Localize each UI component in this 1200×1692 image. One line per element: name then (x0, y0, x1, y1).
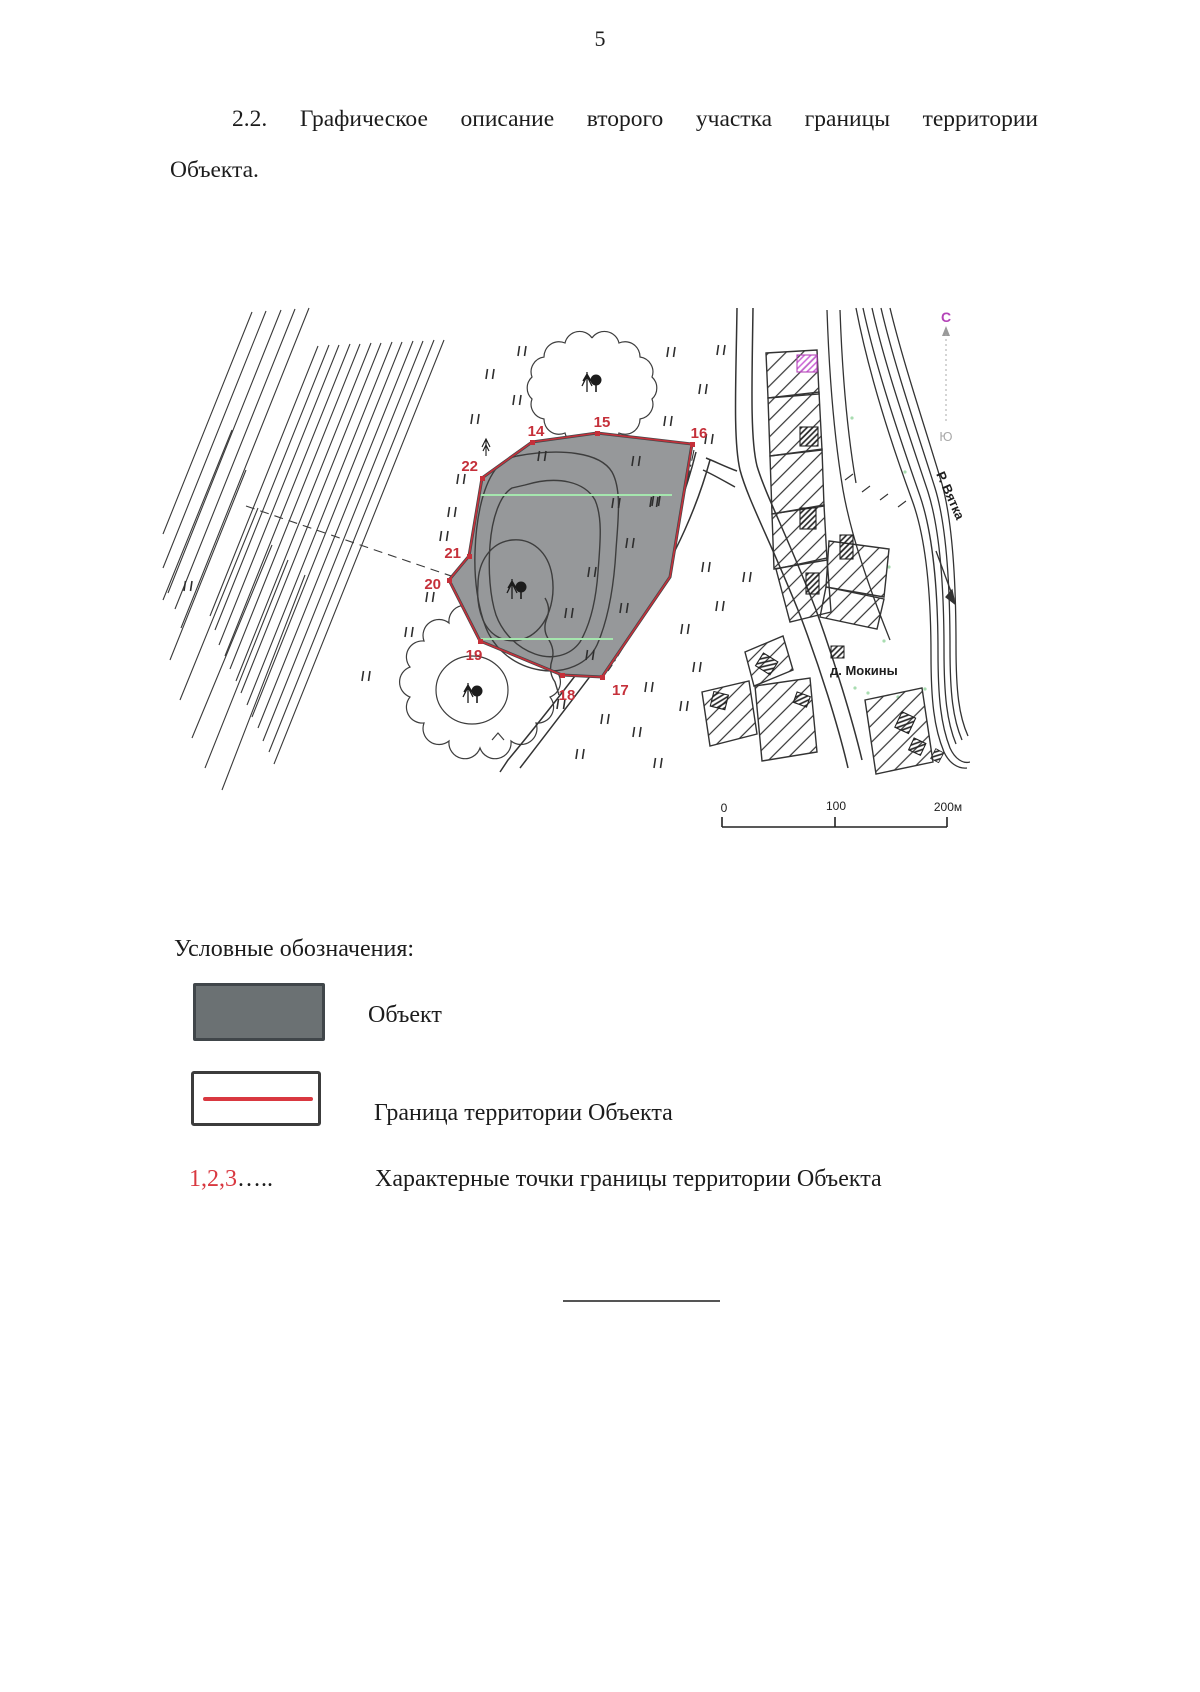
point-label-16: 16 (691, 425, 708, 442)
sapling-icon (482, 439, 490, 456)
legend-object-swatch (193, 983, 325, 1041)
point-label-17: 17 (612, 682, 629, 699)
scale-0: 0 (721, 801, 728, 815)
legend-border-line-icon (203, 1097, 313, 1101)
compass-south-label: Ю (939, 429, 952, 444)
compass-north-label: С (941, 309, 951, 325)
legend-object-label: Объект (368, 1002, 442, 1029)
legend-title: Условные обозначения: (174, 936, 414, 963)
scale-bar-labels: 0 100 200м (721, 799, 962, 815)
section-heading-line2: Объекта. (170, 157, 259, 184)
scale-bar (722, 817, 947, 827)
legend-border-label: Граница территории Объекта (374, 1100, 673, 1127)
legend-points-symbol: 1,2,3….. (189, 1166, 273, 1193)
building-pink (797, 355, 817, 372)
legend-points-dots: ….. (237, 1166, 273, 1192)
page-number: 5 (0, 26, 1200, 52)
river-flow-arrow (936, 551, 955, 604)
object-polygon (449, 433, 692, 695)
forest-cloud-top (527, 331, 657, 444)
point-label-20: 20 (424, 576, 441, 593)
river-label: Р. Вятка (933, 469, 968, 522)
scale-200: 200м (934, 800, 962, 814)
parcels (702, 350, 933, 774)
point-label-19: 19 (466, 647, 483, 664)
bottom-divider-line (563, 1300, 720, 1302)
legend-border-swatch (191, 1071, 321, 1126)
point-label-18: 18 (559, 687, 576, 704)
compass: С Ю (939, 309, 952, 444)
section-heading-line1: 2.2. Графическое описание второго участк… (232, 106, 1038, 133)
point-label-15: 15 (594, 414, 611, 431)
scale-100: 100 (826, 799, 846, 813)
legend-points-label: Характерные точки границы территории Объ… (375, 1166, 882, 1193)
village-label: д. Мокины (830, 663, 898, 678)
legend-points-numbers: 1,2,3 (189, 1166, 237, 1192)
map-figure: 14 15 16 17 18 19 20 21 22 д. Мокины С Ю… (160, 280, 970, 840)
point-label-22: 22 (461, 458, 478, 475)
point-label-14: 14 (528, 423, 545, 440)
village-label-group: д. Мокины (830, 646, 898, 678)
point-label-21: 21 (444, 545, 461, 562)
